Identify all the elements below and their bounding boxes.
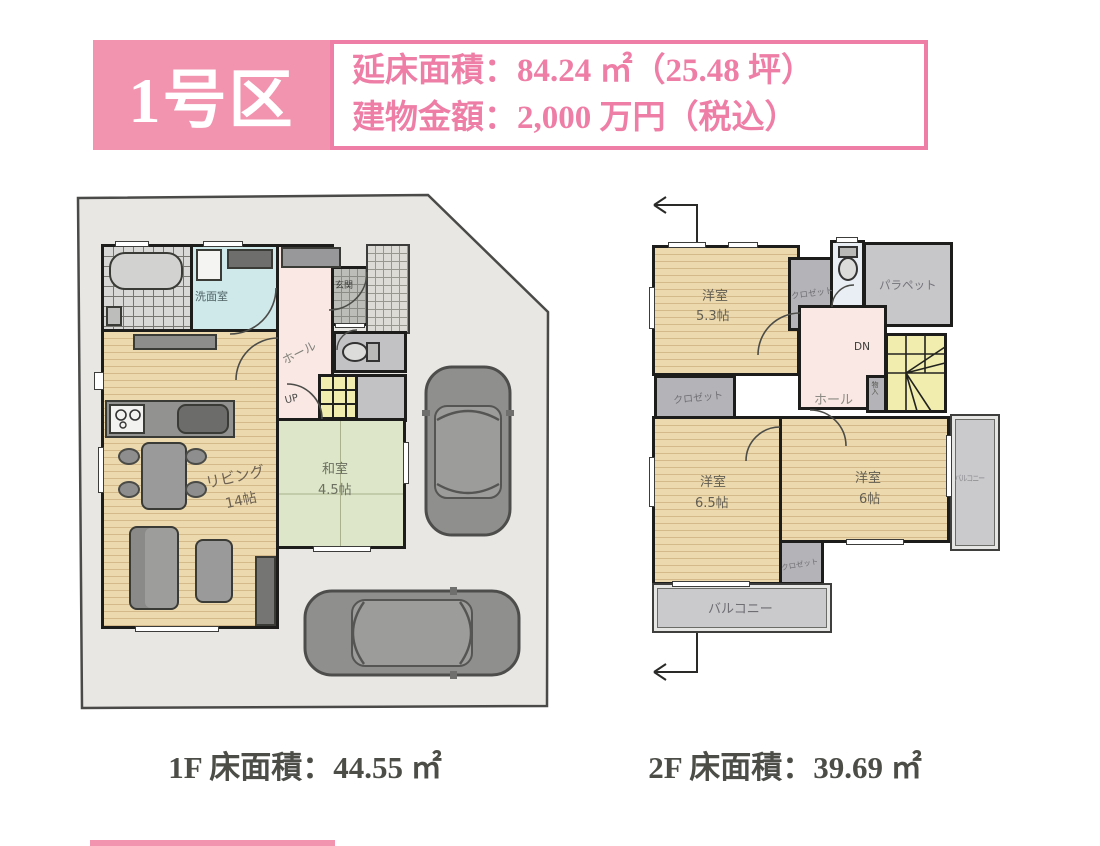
storage-label: 物入 (870, 381, 880, 395)
stairs-1f (318, 374, 358, 420)
window (668, 242, 706, 248)
dining-chair (118, 448, 140, 465)
room53-size-label: 5.3帖 (696, 305, 730, 324)
balcony-right-label: バルコニー (955, 473, 985, 484)
entrance-porch-1f (366, 244, 410, 334)
washroom-label: 洗面室 (195, 288, 228, 304)
room65-size-label: 6.5帖 (695, 492, 729, 511)
window (313, 546, 371, 552)
balcony-door (946, 435, 952, 497)
lot-number-badge: 1号区 (93, 40, 330, 150)
tv-board (255, 556, 276, 626)
window (98, 447, 104, 493)
window (115, 241, 149, 247)
building-info-box: 延床面積：84.24 ㎡（25.48 坪） 建物金額：2,000 万円（税込） (330, 40, 928, 150)
dining-chair (118, 481, 140, 498)
room6-label: 洋室 (855, 467, 881, 486)
vanity-sink (227, 249, 273, 269)
dining-chair (185, 448, 207, 465)
room65-label: 洋室 (700, 471, 726, 490)
stairs-fan-lines (887, 335, 945, 411)
section-arrow-bottom (648, 662, 700, 682)
room53-label: 洋室 (702, 285, 728, 304)
window (135, 626, 219, 632)
room-entrance-1f (331, 266, 369, 326)
window (846, 539, 904, 545)
lot-number-text: 1号区 (129, 49, 295, 141)
washitsu-label: 和室 (322, 458, 348, 477)
kitchen-sink (177, 404, 229, 434)
stove-burners-icon (113, 408, 143, 430)
window (836, 237, 858, 243)
toilet-icon-2f (836, 247, 860, 281)
dining-chair (185, 481, 207, 498)
total-floor-area-text: 延床面積：84.24 ㎡（25.48 坪） (352, 48, 924, 95)
kitchen-cabinet (133, 334, 217, 350)
window (728, 242, 758, 248)
floorplan-sheet: 1号区 延床面積：84.24 ㎡（25.48 坪） 建物金額：2,000 万円（… (0, 0, 1100, 846)
bath-step (106, 306, 122, 326)
next-section-badge-edge (90, 840, 335, 846)
balcony-bottom-label: バルコニー (708, 598, 773, 617)
building-price-text: 建物金額：2,000 万円（税込） (352, 95, 924, 142)
toilet-icon (341, 338, 383, 366)
entrance-label: 玄関 (335, 278, 353, 291)
sofa (129, 526, 179, 610)
car-icon (422, 362, 514, 540)
entrance-step (335, 323, 365, 328)
low-table (195, 539, 233, 603)
floorplan-2f: 洋室 5.3帖 クロゼット パラペット DN ホール 物入 クロゼット 洋室 6… (640, 195, 1010, 685)
bathtub (109, 252, 183, 290)
stairs-dn-label: DN (854, 341, 870, 353)
dining-table (141, 442, 187, 510)
floorplan-1f: 洗面室 玄関 ホール UP リビング 14帖 和室 4.5帖 (75, 192, 557, 708)
floor1-area-caption: 1F 床面積：44.55 ㎡ (85, 742, 525, 787)
shoe-cabinet (281, 247, 341, 268)
window (403, 442, 409, 484)
room6-size-label: 6帖 (859, 488, 880, 507)
parapet-label: パラペット (879, 277, 937, 293)
storage-1f (355, 374, 407, 422)
kitchen-door (94, 372, 104, 390)
car-icon (300, 587, 524, 679)
floor2-area-caption: 2F 床面積：39.69 ㎡ (600, 742, 970, 787)
window (649, 457, 655, 507)
section-arrow-top (648, 195, 700, 215)
washitsu-size-label: 4.5帖 (318, 479, 352, 498)
hall-label-2f: ホール (814, 389, 853, 408)
washing-machine (196, 249, 222, 281)
window (203, 241, 243, 247)
window (649, 287, 655, 329)
balcony-door (672, 581, 750, 587)
